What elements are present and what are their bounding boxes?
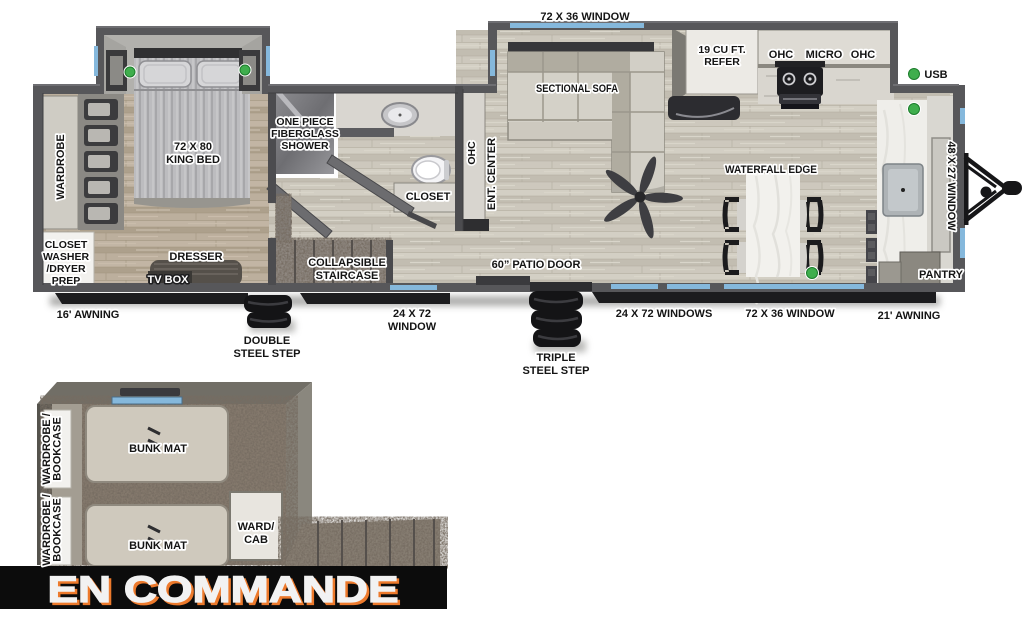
svg-text:USB: USB <box>924 69 947 81</box>
svg-text:STAIRCASE: STAIRCASE <box>316 270 379 282</box>
svg-text:PREP: PREP <box>52 275 81 287</box>
svg-text:CLOSET: CLOSET <box>45 239 88 251</box>
svg-text:WARDROBE /BOOKCASE: WARDROBE /BOOKCASE <box>41 413 64 485</box>
svg-text:BUNK MAT: BUNK MAT <box>129 443 187 455</box>
svg-text:WARDROBE /BOOKCASE: WARDROBE /BOOKCASE <box>41 494 64 566</box>
svg-text:/DRYER: /DRYER <box>46 263 86 275</box>
svg-text:OHC: OHC <box>466 141 478 165</box>
svg-text:STEEL STEP: STEEL STEP <box>233 348 300 360</box>
svg-text:FIBERGLASS: FIBERGLASS <box>271 128 339 140</box>
svg-text:OHC: OHC <box>851 49 876 61</box>
svg-text:TV BOX: TV BOX <box>148 274 190 286</box>
svg-text:WASHER: WASHER <box>43 251 90 263</box>
svg-text:MICRO: MICRO <box>806 49 843 61</box>
svg-text:CLOSET: CLOSET <box>406 191 451 203</box>
svg-text:COLLAPSIBLE: COLLAPSIBLE <box>308 257 386 269</box>
svg-text:72 X 36 WINDOW: 72 X 36 WINDOW <box>540 11 630 23</box>
svg-text:WARD/: WARD/ <box>238 521 275 533</box>
svg-text:72 X 80: 72 X 80 <box>174 141 212 153</box>
svg-text:SECTIONAL SOFA: SECTIONAL SOFA <box>536 83 618 95</box>
svg-text:48 X 27 WINDOW: 48 X 27 WINDOW <box>945 141 957 231</box>
svg-text:21' AWNING: 21' AWNING <box>878 310 941 322</box>
svg-text:WARDROBE: WARDROBE <box>55 134 67 199</box>
svg-text:DOUBLE: DOUBLE <box>244 335 290 347</box>
svg-text:24 X 72: 24 X 72 <box>393 308 431 320</box>
svg-text:CAB: CAB <box>244 534 268 546</box>
svg-text:SHOWER: SHOWER <box>281 140 329 152</box>
svg-text:60” PATIO DOOR: 60” PATIO DOOR <box>492 259 581 271</box>
svg-text:OHC: OHC <box>769 49 794 61</box>
svg-text:DRESSER: DRESSER <box>169 251 222 263</box>
svg-text:PANTRY: PANTRY <box>919 269 964 281</box>
svg-text:ONE PIECE: ONE PIECE <box>276 116 333 128</box>
svg-text:16' AWNING: 16' AWNING <box>57 309 120 321</box>
svg-text:19 CU FT.: 19 CU FT. <box>698 44 745 56</box>
svg-text:KING BED: KING BED <box>166 154 220 166</box>
svg-text:WATERFALL EDGE: WATERFALL EDGE <box>725 164 817 176</box>
svg-text:STEEL STEP: STEEL STEP <box>522 365 589 377</box>
svg-text:EN COMMANDE: EN COMMANDE <box>48 568 399 610</box>
svg-text:72 X 36 WINDOW: 72 X 36 WINDOW <box>745 308 835 320</box>
svg-text:ENT. CENTER: ENT. CENTER <box>486 138 498 210</box>
svg-text:24 X 72 WINDOWS: 24 X 72 WINDOWS <box>616 308 713 320</box>
svg-text:TRIPLE: TRIPLE <box>536 352 575 364</box>
svg-text:REFER: REFER <box>704 56 740 68</box>
svg-text:BUNK MAT: BUNK MAT <box>129 540 187 552</box>
svg-text:WINDOW: WINDOW <box>388 321 437 333</box>
